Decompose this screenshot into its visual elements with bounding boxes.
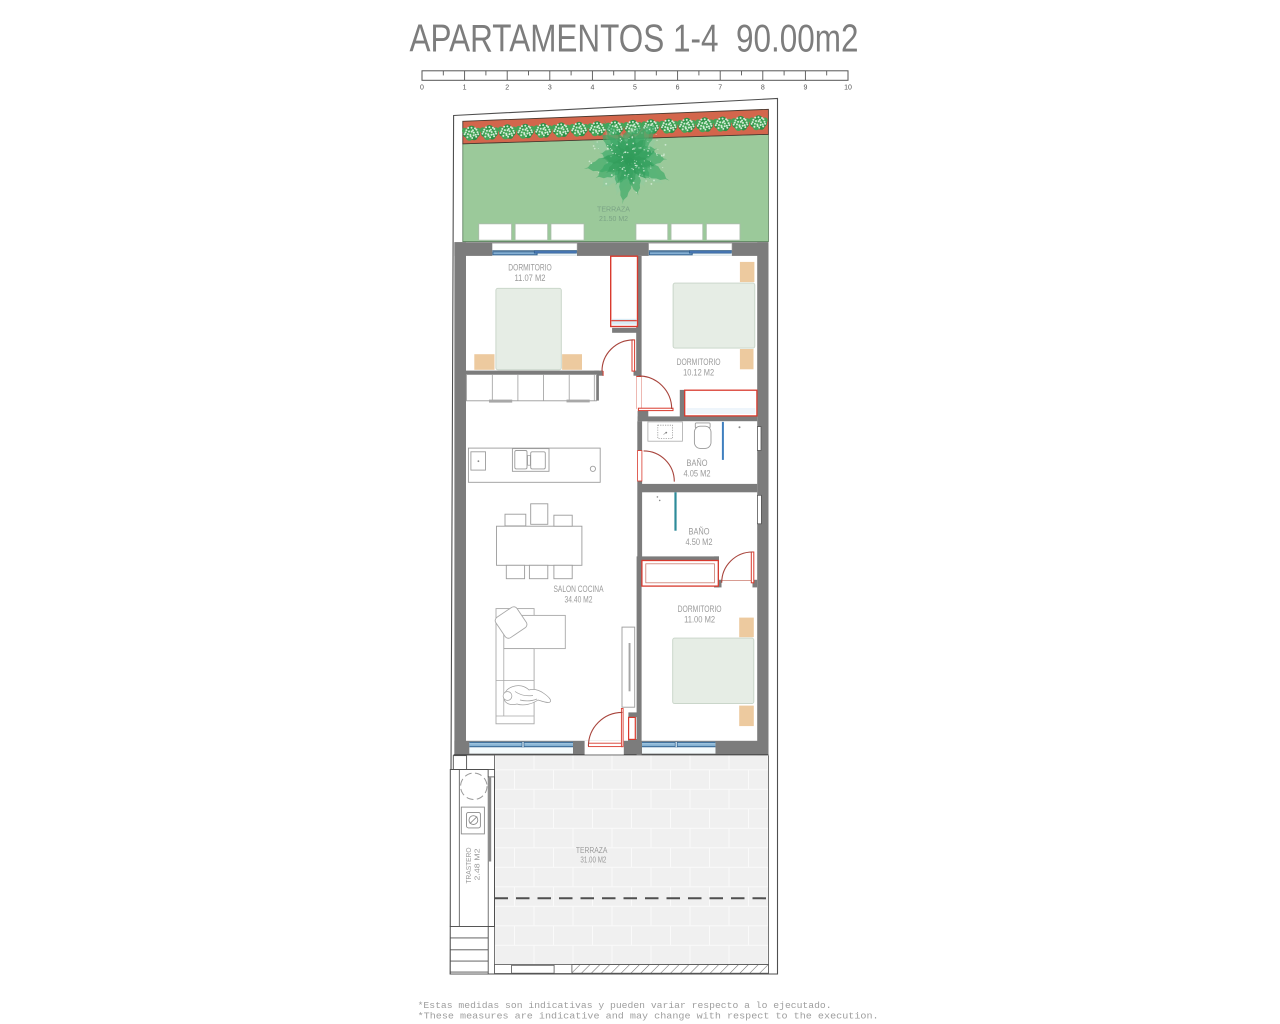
svg-text:DORMITORIO: DORMITORIO: [508, 262, 552, 273]
svg-text:10: 10: [844, 85, 852, 92]
svg-text:4.50 M2: 4.50 M2: [686, 537, 713, 547]
svg-text:31.00 M2: 31.00 M2: [580, 856, 606, 865]
svg-text:11.00 M2: 11.00 M2: [684, 615, 715, 625]
svg-text:SALON COCINA: SALON COCINA: [554, 584, 604, 595]
svg-text:1: 1: [463, 85, 467, 92]
svg-text:9: 9: [803, 85, 807, 92]
svg-text:TERRAZA: TERRAZA: [576, 845, 608, 855]
svg-text:4.05 M2: 4.05 M2: [684, 469, 711, 479]
svg-text:TERRAZA: TERRAZA: [597, 205, 631, 214]
svg-text:BAÑO: BAÑO: [687, 458, 708, 469]
svg-text:APARTAMENTOS 1-4 90.00m2: APARTAMENTOS 1-4 90.00m2: [410, 18, 859, 61]
svg-text:10.12 M2: 10.12 M2: [683, 368, 714, 378]
svg-text:7: 7: [718, 85, 722, 92]
svg-text:0: 0: [420, 85, 424, 92]
svg-text:3: 3: [548, 85, 552, 92]
svg-text:8: 8: [761, 85, 765, 92]
svg-text:*These measures are indicative: *These measures are indicative and may c…: [418, 1010, 879, 1021]
svg-text:5: 5: [633, 85, 637, 92]
svg-text:11.07 M2: 11.07 M2: [515, 273, 546, 283]
svg-text:21.50 M2: 21.50 M2: [599, 214, 628, 223]
svg-text:DORMITORIO: DORMITORIO: [678, 604, 722, 615]
svg-text:2.48 M2: 2.48 M2: [472, 849, 481, 881]
svg-text:4: 4: [590, 85, 594, 92]
svg-text:DORMITORIO: DORMITORIO: [677, 357, 721, 368]
svg-text:TRASTERO: TRASTERO: [464, 847, 473, 883]
svg-text:34.40 M2: 34.40 M2: [565, 595, 593, 605]
svg-text:6: 6: [676, 85, 680, 92]
svg-text:BAÑO: BAÑO: [689, 527, 710, 538]
svg-text:2: 2: [505, 85, 509, 92]
